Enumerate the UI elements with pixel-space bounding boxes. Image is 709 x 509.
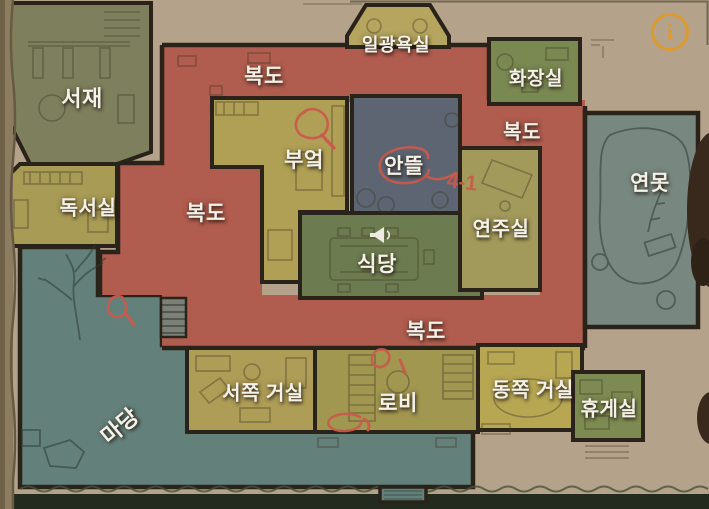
- map-viewport: 4-1 서재 독서실 복도 복도 복도 복도 부엌 안뜰 일광욕실 화장실 연주…: [0, 0, 709, 509]
- room-sunroom-area: [347, 5, 449, 47]
- room-pond-area: [585, 113, 698, 327]
- bottom-dark-band: [0, 494, 709, 509]
- paper-left-edge: [0, 0, 15, 509]
- room-west-living-area: [187, 348, 315, 432]
- room-study-area: [4, 3, 151, 164]
- info-button[interactable]: i: [651, 13, 689, 51]
- room-dining-area: [300, 213, 482, 298]
- pen-note-text: 4-1: [446, 169, 479, 196]
- stairs-lower-left: [161, 298, 186, 337]
- room-music-room-area: [460, 148, 540, 290]
- floorplan-svg: 4-1: [0, 0, 709, 509]
- info-icon: i: [667, 19, 673, 45]
- room-lobby-area: [315, 348, 478, 432]
- room-courtyard-area: [352, 96, 460, 213]
